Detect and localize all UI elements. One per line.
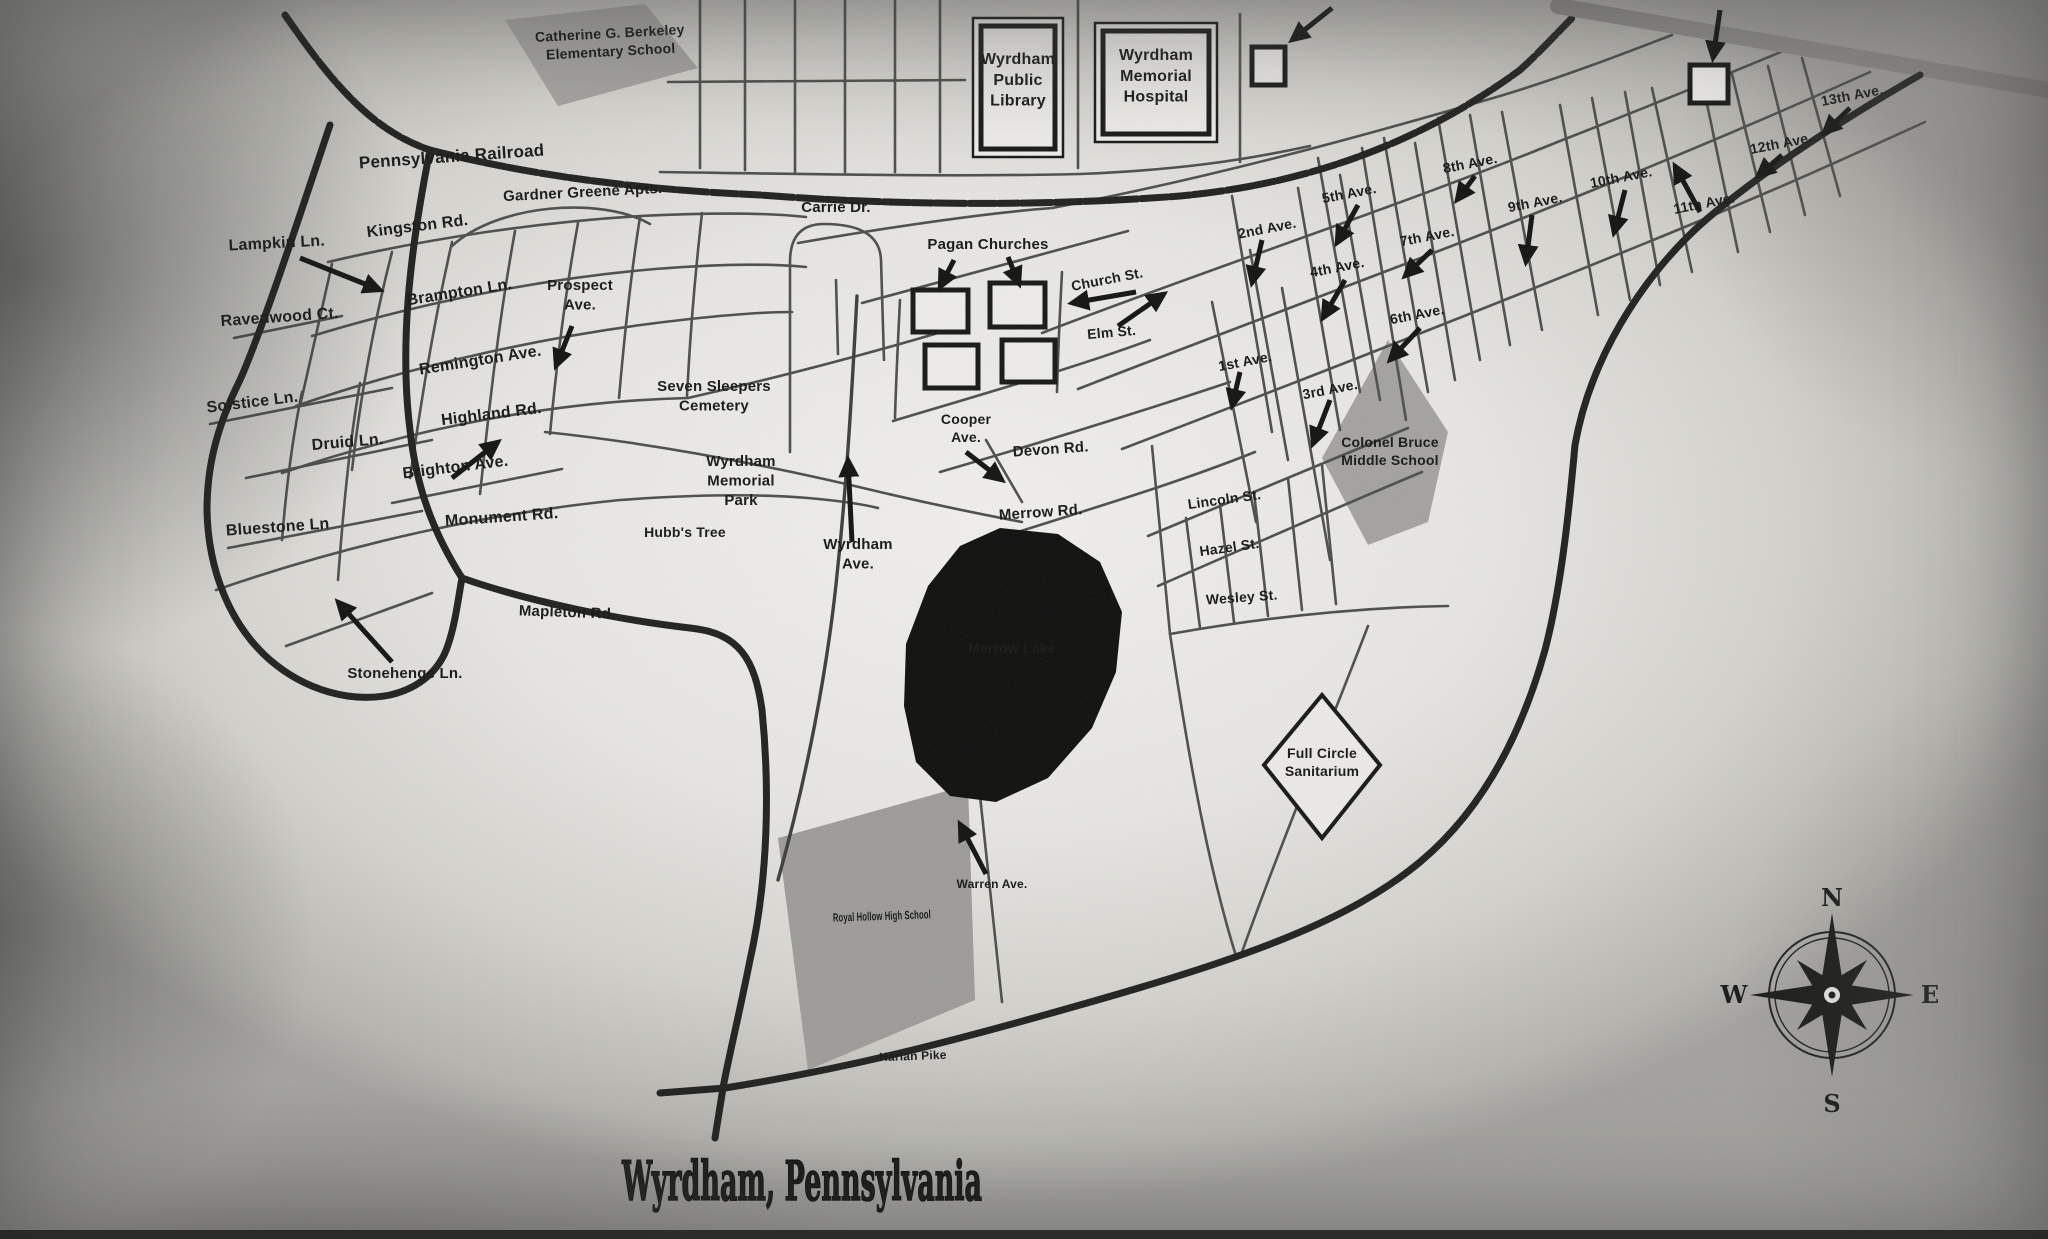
paper-grain [0,0,2048,1239]
scan-edge [0,1230,2048,1239]
town-map: Catherine G. BerkeleyElementary SchoolWy… [0,0,2048,1239]
